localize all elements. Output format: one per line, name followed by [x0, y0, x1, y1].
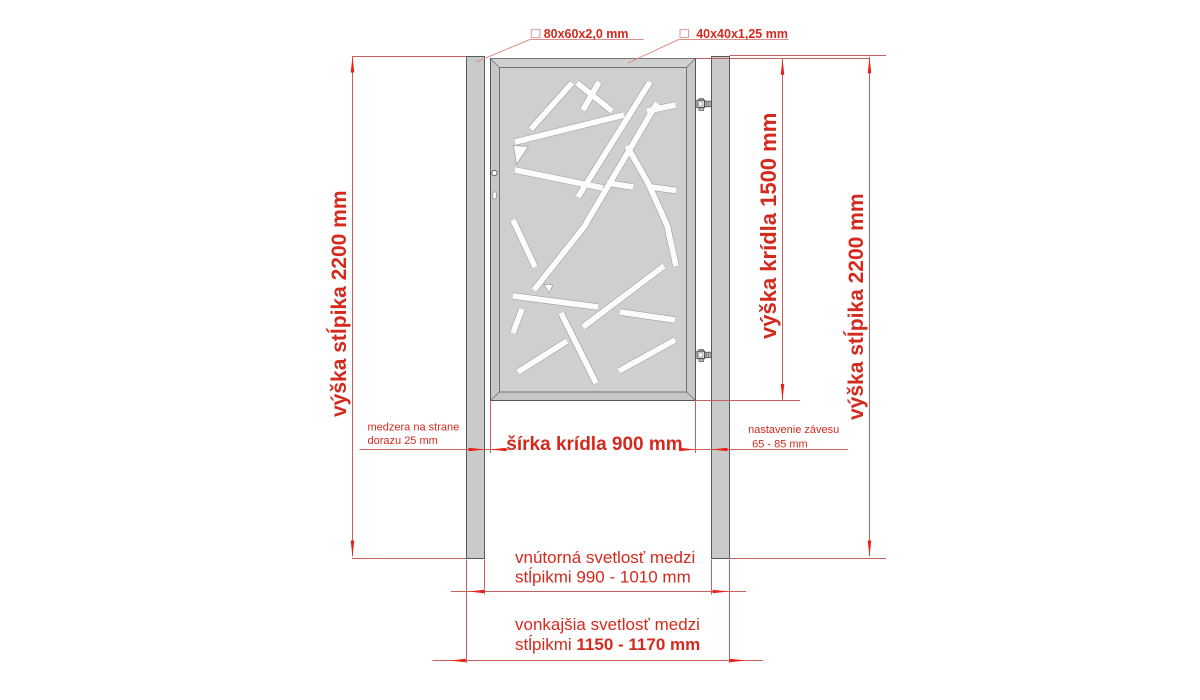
svg-text:nastavenie závesu: nastavenie závesu: [748, 424, 839, 436]
svg-text:80x60x2,0 mm: 80x60x2,0 mm: [544, 27, 629, 41]
svg-text:40x40x1,25 mm: 40x40x1,25 mm: [696, 27, 788, 41]
svg-text:medzera na strane: medzera na strane: [368, 422, 460, 434]
svg-text:dorazu 25 mm: dorazu 25 mm: [368, 435, 438, 447]
svg-text:stĺpikmi 1150 - 1170 mm: stĺpikmi 1150 - 1170 mm: [515, 635, 700, 654]
svg-text:výška stĺpika 2200 mm: výška stĺpika 2200 mm: [844, 194, 868, 421]
svg-text:65 - 85 mm: 65 - 85 mm: [752, 439, 808, 451]
svg-text:výška krídla 1500 mm: výška krídla 1500 mm: [756, 113, 781, 339]
svg-text:šírka krídla 900 mm: šírka krídla 900 mm: [506, 434, 682, 455]
svg-text:vnútorná svetlosť medzi: vnútorná svetlosť medzi: [515, 548, 695, 567]
svg-text:výška stĺpika 2200 mm: výška stĺpika 2200 mm: [327, 191, 351, 418]
svg-text:vonkajšia svetlosť medzi: vonkajšia svetlosť medzi: [515, 615, 700, 634]
svg-text:stĺpikmi 990 - 1010 mm: stĺpikmi 990 - 1010 mm: [515, 568, 691, 587]
